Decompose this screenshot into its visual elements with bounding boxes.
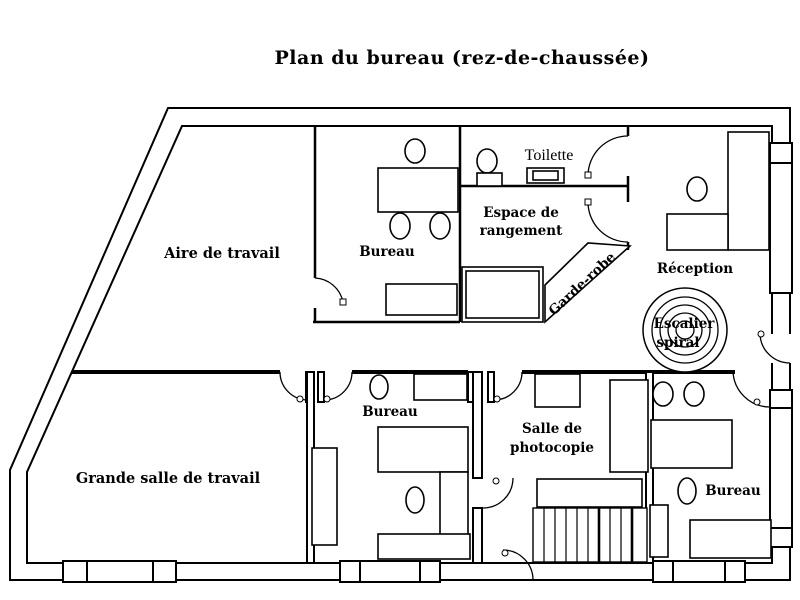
table	[690, 520, 771, 558]
room-label-photocopie-1: Salle de	[522, 421, 582, 437]
door-hinge	[494, 396, 500, 402]
table	[537, 479, 642, 507]
floor-plan: Plan du bureau (rez-de-chaussée) Aire de…	[0, 0, 800, 600]
desk	[651, 420, 732, 468]
shelf	[386, 284, 457, 315]
door-hinge	[758, 331, 764, 337]
side-door-opening	[767, 334, 793, 363]
room-label-aire: Aire de travail	[163, 245, 280, 262]
straight-staircase	[533, 508, 647, 562]
reception-desk-long	[728, 132, 769, 250]
door-hinge	[297, 396, 303, 402]
window-right-bureau	[770, 408, 792, 528]
storage-cabinet-inner	[466, 271, 539, 318]
room-label-toilette: Toilette	[525, 147, 574, 164]
plan-title: Plan du bureau (rez-de-chaussée)	[275, 47, 650, 69]
desk	[378, 168, 458, 212]
room-label-rangement-2: rangement	[480, 223, 563, 239]
window-right-reception	[770, 163, 792, 293]
window-cap	[63, 561, 87, 582]
chair	[687, 177, 707, 201]
chair	[684, 382, 704, 406]
room-label-escalier-1: Escalier	[654, 316, 716, 332]
window-bottom-right	[673, 561, 725, 582]
window-cap	[770, 528, 792, 547]
chair	[678, 478, 696, 504]
chair	[430, 213, 450, 239]
room-label-bureau-mid: Bureau	[362, 404, 418, 420]
door-hinge	[754, 399, 760, 405]
desk	[378, 427, 468, 472]
room-label-rangement-1: Espace de	[483, 205, 559, 221]
door-hinge	[493, 478, 499, 484]
chair	[370, 375, 388, 399]
chair	[390, 213, 410, 239]
room-label-bureau-br: Bureau	[705, 483, 761, 499]
window-cap	[653, 561, 673, 582]
window-cap	[153, 561, 176, 582]
room-label-escalier-2: spiral	[656, 335, 699, 351]
stair-outline	[533, 508, 647, 562]
sink	[477, 149, 497, 173]
door-stub	[488, 372, 494, 402]
table	[378, 534, 470, 559]
room-label-photocopie-2: photocopie	[510, 440, 594, 456]
window-cap	[340, 561, 360, 582]
window-cap	[770, 143, 792, 163]
room-label-grande-salle: Grande salle de travail	[76, 470, 261, 487]
door-hinge	[324, 396, 330, 402]
reception-desk-return	[667, 214, 728, 250]
desk-return	[440, 472, 468, 537]
window-bottom-left	[87, 561, 153, 582]
door-leaf-marker	[585, 172, 591, 178]
chair	[406, 487, 424, 513]
shelf	[414, 374, 467, 400]
chair	[653, 382, 673, 406]
cabinet	[650, 505, 668, 557]
sink-base	[477, 173, 502, 186]
door-hinge	[502, 550, 508, 556]
wall-bureau-photocopie-lower	[473, 508, 482, 563]
wall-bureau-photocopie-upper	[473, 372, 482, 478]
photocopier	[535, 374, 580, 407]
machine	[610, 380, 648, 472]
window-cap	[770, 390, 792, 408]
cabinet	[312, 448, 337, 545]
door-leaf-marker	[585, 199, 591, 205]
toilet-seat	[533, 171, 558, 180]
door-leaf-marker	[340, 299, 346, 305]
room-label-reception: Réception	[657, 261, 733, 277]
window-bottom-mid	[360, 561, 420, 582]
window-cap	[420, 561, 440, 582]
window-cap	[725, 561, 745, 582]
door-stub	[318, 372, 324, 402]
room-label-bureau-top: Bureau	[359, 244, 415, 260]
chair	[405, 139, 425, 163]
